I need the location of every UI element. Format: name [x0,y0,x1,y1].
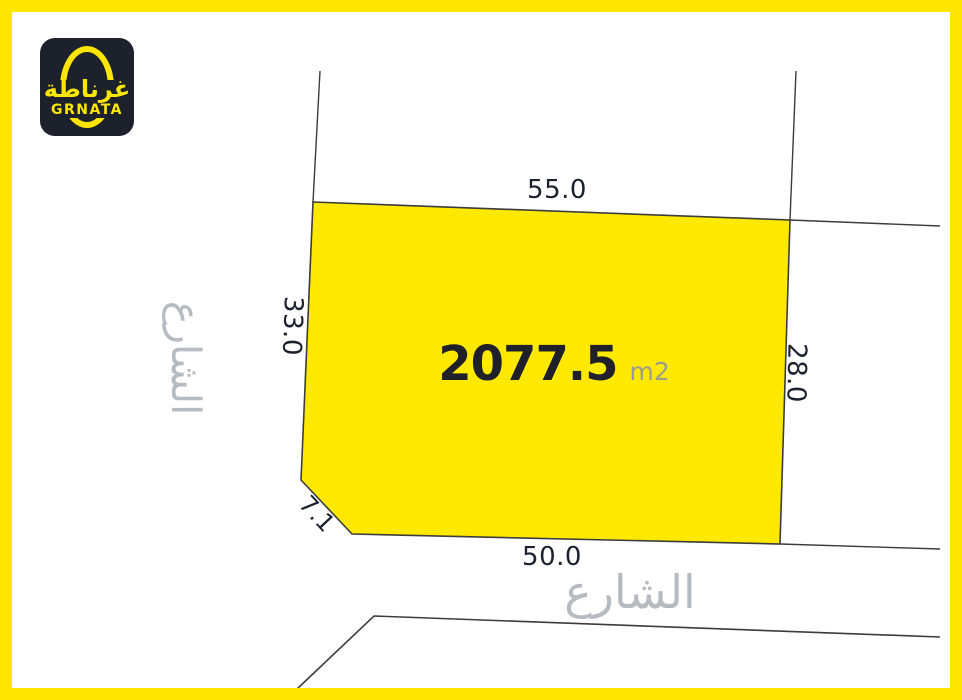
survey-line-bottom-extension [780,544,940,549]
street-label-left: الشارع [162,301,208,415]
logo-latin-wordmark: GRNATA [40,102,134,118]
plot-area-value: 2077.5 [438,336,617,392]
survey-line-right-extension [790,71,796,220]
dimension-label-top: 55.0 [527,175,587,205]
plot-area: 2077.5 m2 [438,336,670,392]
dimension-label-left: 33.0 [276,296,308,357]
survey-line-left-extension [313,71,320,202]
street-label-bottom: الشارع [564,565,696,619]
logo-arabic-wordmark: غرناطة [40,76,134,102]
land-plot-diagram: 55.0 33.0 28.0 50.0 7.1 2077.5 m2 الشارع… [0,0,962,700]
survey-line-top-extension [790,220,940,226]
street-boundary-line [297,616,940,689]
dimension-label-right: 28.0 [780,343,811,403]
grnata-logo: غرناطة GRNATA [40,38,134,136]
plot-area-unit: m2 [629,357,669,386]
